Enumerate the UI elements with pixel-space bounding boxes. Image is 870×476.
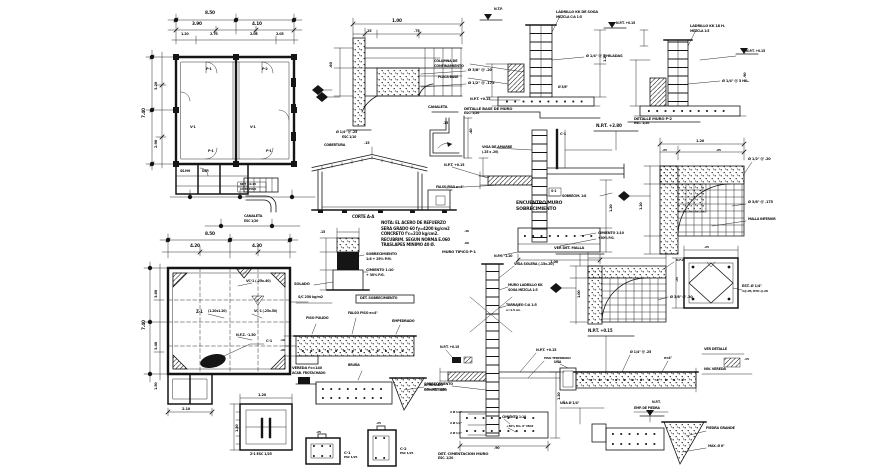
annotation-text: .15	[364, 142, 369, 145]
annotation-text: ESC 1/20	[244, 220, 258, 223]
annotation-text: 1.00	[578, 290, 581, 298]
annotation-text: Ø 3/8"	[558, 86, 568, 89]
annotation-text: TARRAJEO C:A 1:5	[506, 304, 537, 307]
annotation-text: PISO PULIDO	[306, 317, 328, 320]
annotation-text: CORTE A-A	[352, 215, 374, 219]
annotation-text: CANALETA	[428, 106, 447, 110]
annotation-text: .25	[676, 277, 679, 282]
annotation-text: ESC. 1/20	[634, 122, 649, 125]
annotation-text: 1:8 + 25% P.M.	[424, 388, 446, 391]
annotation-text: 7.40	[143, 108, 147, 118]
annotation-text: N.F.C. -1.20	[494, 255, 512, 258]
annotation-text: MALLA INFERIOR	[748, 218, 776, 221]
annotation-text: .40	[464, 230, 469, 233]
annotation-text: UÑA Ø 1/4"	[560, 402, 579, 405]
annotation-text: 1.50	[155, 382, 158, 390]
annotation-text: (.25 x .20)	[482, 151, 498, 154]
annotation-text: .90	[494, 447, 499, 450]
annotation-text: CONFINAMIENTO	[434, 65, 464, 68]
annotation-text: S/C 250 kg/m2	[298, 296, 323, 299]
annotation-text: ESC. 1/20	[438, 457, 453, 460]
annotation-text: Ø 3/8" @ .20	[468, 68, 492, 72]
annotation-text: P-2	[262, 68, 268, 71]
annotation-text: .40	[470, 129, 473, 134]
annotation-text: 1.20	[236, 424, 239, 432]
annotation-text: CIMIENTO 1:10	[598, 232, 624, 235]
annotation-text: SOBRECIMIENTO	[516, 208, 556, 213]
annotation-text: N.F.Z. -1.50	[236, 334, 256, 337]
annotation-text: N.P.T.	[652, 401, 661, 404]
annotation-text: P-1	[206, 68, 212, 71]
annotation-text: .60	[464, 242, 469, 245]
annotation-text: CIMIENTO 1:10	[502, 416, 526, 419]
annotation-text: P-1	[208, 150, 214, 153]
annotation-text: .25	[316, 431, 321, 434]
annotation-text: SERA GRADO 60 fy=4200 kg/cm2	[381, 227, 450, 231]
annotation-text: .15	[320, 231, 325, 234]
annotation-text: ESC 1/10	[342, 136, 356, 139]
annotation-text: SOGA MEZCLA 1:5	[508, 289, 538, 292]
annotation-text: FALSO PISO e=4"	[348, 312, 378, 315]
annotation-text: 1.20	[696, 140, 704, 144]
annotation-text: N.P.T. +0.15	[440, 346, 459, 349]
annotation-text: CANALETA	[244, 215, 262, 218]
annotation-text: 1:8 + 25% P.M.	[366, 258, 392, 261]
annotation-text: 3.40	[155, 342, 159, 350]
annotation-text: V-1	[250, 126, 256, 129]
annotation-text: .95	[716, 149, 721, 152]
annotation-text: N.P.T. +2.80	[596, 124, 622, 128]
annotation-text: NIV. VEREDA	[704, 368, 726, 371]
annotation-text: ESC 1/25	[400, 452, 413, 455]
annotation-text: 4.30	[252, 245, 262, 249]
annotation-text: Ø 1/2" @ .175	[468, 81, 494, 85]
annotation-text: 7.40	[143, 320, 147, 330]
annotation-text: ACAB. FROTACHADO	[292, 372, 325, 375]
annotation-text: .20	[280, 349, 285, 352]
annotation-text: 4.10	[252, 23, 262, 27]
annotation-text: N.P.T. +0.15	[536, 349, 556, 352]
annotation-text: FALSO PISO e=4"	[436, 186, 464, 189]
annotation-text: Ø 1/4" @ .25	[630, 351, 651, 354]
annotation-text: EMP. DE PIEDRA	[634, 407, 660, 410]
annotation-text: CONCRETO f'c=210 kg/cm2.	[381, 232, 438, 236]
annotation-text: 1@.05, RTO @.20	[742, 290, 768, 293]
annotation-text: .90	[744, 73, 747, 78]
annotation-text: ESC 1/25	[344, 456, 357, 459]
annotation-text: 3.90	[192, 23, 202, 27]
annotation-text: 1.20	[640, 202, 643, 210]
annotation-text: SOBRECIM. 1:8	[562, 195, 586, 198]
annotation-text: C-1	[266, 340, 272, 344]
annotation-text: Z-1	[196, 310, 203, 314]
annotation-text: COBERTURA	[324, 144, 345, 147]
annotation-text: 2 Ø 1/2"	[450, 432, 462, 435]
annotation-text: MAX. Ø 8"	[708, 445, 724, 448]
annotation-text: SS.HH	[180, 170, 190, 173]
annotation-text: (1.20x1.20)	[208, 310, 227, 313]
annotation-text: Ø 3/8" @ .175	[748, 201, 773, 205]
annotation-text: NOTA: EL ACERO DE REFUERZO	[381, 221, 446, 225]
annotation-text: COLUMNA DE	[434, 60, 457, 63]
annotation-text: .25	[366, 30, 371, 33]
annotation-text: Z-1 ESC 1/25	[250, 453, 272, 456]
annotation-text: 1.00	[392, 20, 402, 24]
annotation-text: e=1.5 cm	[506, 309, 520, 312]
annotation-text: MEZCLA 1:5	[690, 30, 709, 33]
annotation-text: .15	[443, 122, 448, 125]
annotation-text: 2.10	[182, 408, 190, 412]
annotation-text: MURO TIPICO P-1	[442, 250, 476, 254]
annotation-text: 1.20	[181, 33, 189, 36]
annotation-text: BRUÑA	[348, 364, 360, 367]
annotation-text: DET. SOBRECIMIENTO	[360, 297, 397, 300]
annotation-text: TRASLAPES MINIMO 40 Ø.	[381, 243, 435, 247]
annotation-text: VC-1 (.25x.40)	[246, 280, 271, 283]
annotation-text: .25	[376, 422, 381, 425]
annotation-text: 8.50	[205, 233, 215, 237]
annotation-text: +30% P.G. 6" MAX	[506, 425, 533, 428]
annotation-text: Ø 1/4" @ .25	[336, 131, 357, 134]
annotation-text: 3.20	[155, 82, 159, 90]
annotation-text: N.P.T. +0.15	[746, 50, 765, 53]
annotation-text: .25	[704, 246, 709, 249]
annotation-text: NPT +0.15	[240, 183, 256, 186]
annotation-text: S-1	[551, 190, 556, 193]
annotation-text: e=4"	[664, 357, 672, 360]
annotation-text: ENCUENTRO MURO	[516, 202, 562, 207]
annotation-text: 2.05	[276, 33, 284, 36]
annotation-text: VC-1 (.25x.50)	[254, 310, 277, 313]
annotation-text: COTA PISO	[240, 188, 256, 191]
annotation-text: Ø 3/8" @ .20	[670, 296, 693, 300]
annotation-text: EMPEDRADO	[392, 320, 414, 323]
annotation-text: .15	[744, 358, 749, 361]
annotation-text: + 30% P.G.	[366, 274, 385, 277]
annotation-text: .60	[330, 62, 334, 68]
annotation-text: VIGA DE AMARRE	[482, 146, 512, 149]
annotation-text: 3.60	[155, 290, 159, 298]
annotation-text: C-1	[560, 133, 566, 137]
annotation-text: PIEDRA GRANDE	[706, 427, 735, 430]
annotation-text: MURO LADRILLO KK	[508, 284, 543, 287]
annotation-text: 2 Ø 1/2"	[450, 422, 462, 425]
annotation-text: 1.20	[558, 392, 561, 400]
annotation-text: N.P.T. +0.15	[616, 22, 635, 25]
annotation-text: PLACA BASE	[438, 76, 458, 79]
annotation-text: P-1	[266, 150, 272, 153]
annotation-text: 4.20	[190, 245, 200, 249]
annotation-text: SOBRECIMIENTO	[424, 383, 453, 386]
annotation-text: UÑA	[554, 361, 561, 364]
annotation-text: 1.20	[610, 204, 613, 212]
annotation-text: 2.05	[250, 33, 258, 36]
annotation-text: 1.20	[258, 394, 266, 398]
annotation-text: .75	[414, 30, 419, 33]
annotation-text: ESC. 1/20	[464, 112, 479, 115]
annotation-text: VER DETALLE	[704, 348, 727, 351]
annotation-text: SOLADO	[294, 283, 310, 287]
cad-sheet: 8.503.904.101.202.702.052.057.403.202.90…	[0, 0, 870, 476]
annotation-text: N.F.Z.	[676, 259, 685, 262]
annotation-text: 1.20	[604, 54, 607, 62]
annotation-text: VER DET. MALLA	[554, 247, 584, 251]
annotation-text: N.P.T. +0.15	[588, 329, 612, 333]
annotation-text: .10	[280, 339, 285, 342]
annotation-text: RECUBRIM. SEGUN NORMA E.060	[381, 238, 450, 242]
annotation-text: N.P.T. +0.15	[444, 164, 464, 167]
annotation-text: 2.90	[155, 140, 159, 148]
annotation-text: 2 Ø 1/2"	[450, 411, 462, 414]
annotation-text: N.T.P.	[494, 8, 503, 11]
annotation-text: Ø 1/2" @ .20	[748, 158, 771, 162]
annotation-text: DEP.	[202, 170, 209, 173]
annotation-text: MEZCLA C:A 1:5	[556, 16, 582, 19]
annotation-layer: 8.503.904.101.202.702.052.057.403.202.90…	[0, 0, 870, 476]
annotation-text: V-1	[190, 126, 196, 129]
annotation-text: Ø 1/4" @ 3 HIL.	[722, 80, 749, 84]
annotation-text: +30% P.G.	[598, 237, 614, 240]
annotation-text: N.P.T. +0.15	[470, 98, 490, 101]
annotation-text: VIGA SOLERA (.15x.20)	[514, 263, 554, 266]
annotation-text: 2.70	[210, 33, 218, 36]
annotation-text: .25	[662, 149, 667, 152]
annotation-text: 8.50	[205, 12, 215, 16]
